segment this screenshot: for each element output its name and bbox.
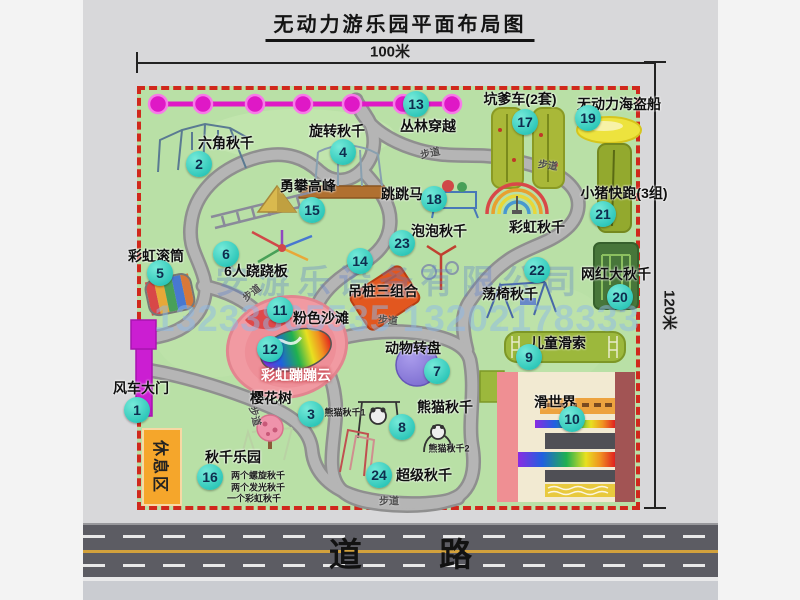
attraction-label-17: 坑爹车(2套)	[483, 89, 556, 109]
attraction-label-2: 六角秋千	[198, 133, 254, 153]
attraction-badge-17: 17	[512, 109, 538, 135]
note-label-0: 熊猫秋千1	[324, 406, 365, 419]
extra-label-0: 彩虹秋千	[509, 217, 565, 237]
attraction-label-12: 彩虹蹦蹦云	[261, 365, 331, 385]
road-label: 道 路	[83, 525, 718, 579]
attraction-badge-23: 23	[389, 230, 415, 256]
walkway-label-0: 步道	[239, 280, 264, 304]
attraction-badge-8: 8	[389, 414, 415, 440]
attraction-badge-15: 15	[299, 197, 325, 223]
attraction-label-11: 粉色沙滩	[293, 308, 349, 328]
attraction-label-24: 超级秋千	[396, 465, 452, 485]
attraction-badge-9: 9	[516, 344, 542, 370]
attraction-badge-21: 21	[590, 201, 616, 227]
attraction-badge-10: 10	[559, 406, 585, 432]
attraction-badge-2: 2	[186, 151, 212, 177]
attraction-badge-24: 24	[366, 462, 392, 488]
attraction-badge-6: 6	[213, 241, 239, 267]
road: 道 路	[83, 523, 718, 581]
attraction-label-1: 风车大门	[113, 378, 169, 398]
attraction-badge-1: 1	[124, 397, 150, 423]
attraction-badge-4: 4	[330, 139, 356, 165]
labels-layer: 风车大门1六角秋千2樱花树3旋转秋千4彩虹滚筒56人跷跷板6动物转盘7熊猫秋千8…	[0, 0, 800, 600]
attraction-badge-3: 3	[298, 401, 324, 427]
attraction-label-23: 泡泡秋千	[411, 221, 467, 241]
attraction-label-14: 吊桩三组合	[348, 281, 418, 301]
attraction-label-15: 勇攀高峰	[280, 176, 336, 196]
screenshot-root: 无动力游乐园平面布局图 100米 120米	[0, 0, 800, 600]
attraction-label-18: 跳跳马	[381, 184, 423, 204]
attraction-badge-18: 18	[421, 186, 447, 212]
walkway-label-5: 步道	[379, 493, 399, 508]
note-label-4: 一个彩虹秋千	[227, 492, 281, 505]
attraction-badge-20: 20	[607, 284, 633, 310]
attraction-badge-5: 5	[147, 260, 173, 286]
below-road-strip	[83, 581, 718, 600]
attraction-badge-7: 7	[424, 358, 450, 384]
attraction-badge-11: 11	[267, 297, 293, 323]
walkway-label-2: 步道	[537, 155, 559, 173]
walkway-label-3: 步道	[377, 311, 398, 328]
attraction-label-21: 小猪快跑(3组)	[580, 183, 667, 203]
attraction-label-13: 丛林穿越	[400, 116, 456, 136]
attraction-badge-19: 19	[575, 105, 601, 131]
attraction-badge-13: 13	[403, 91, 429, 117]
note-label-1: 熊猫秋千2	[428, 442, 469, 455]
attraction-label-20: 网红大秋千	[581, 264, 651, 284]
attraction-label-8: 熊猫秋千	[417, 397, 473, 417]
attraction-label-7: 动物转盘	[385, 338, 441, 358]
attraction-badge-14: 14	[347, 248, 373, 274]
attraction-badge-22: 22	[524, 257, 550, 283]
walkway-label-1: 步道	[419, 143, 442, 162]
attraction-label-22: 荡椅秋千	[482, 284, 538, 304]
attraction-badge-16: 16	[197, 464, 223, 490]
attraction-label-4: 旋转秋千	[309, 121, 365, 141]
attraction-badge-12: 12	[257, 336, 283, 362]
